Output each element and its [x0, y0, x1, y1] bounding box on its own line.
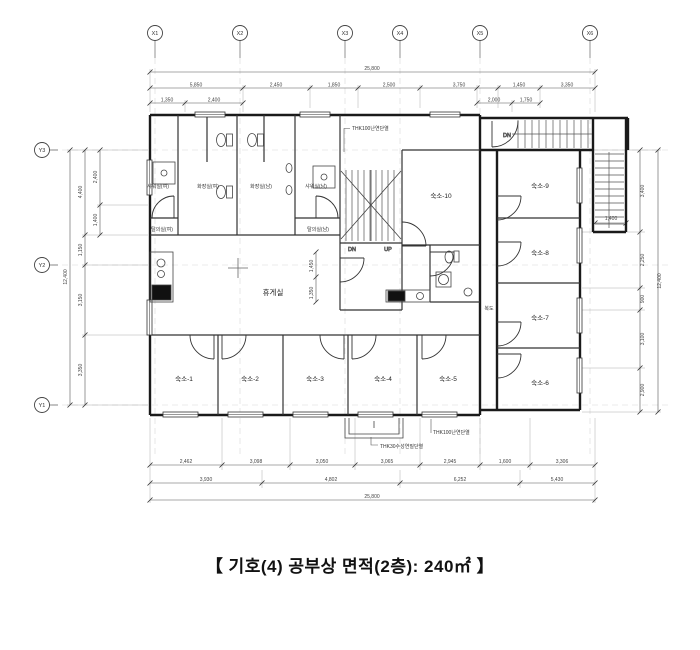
kitchen-sink — [157, 259, 165, 267]
grid-label-x1: X1 — [152, 31, 159, 37]
stair-up-label: UP — [384, 247, 392, 253]
room-label-suk7: 숙소-7 — [531, 314, 549, 322]
dim-text: 4,400 — [78, 186, 84, 199]
grid-label-x2: X2 — [237, 31, 244, 37]
dim-text: 3,150 — [78, 294, 84, 307]
washer-drum — [439, 275, 449, 285]
dim-text: 25,800 — [364, 494, 380, 500]
toilet-tank — [227, 134, 233, 146]
door-arc — [340, 258, 364, 282]
sink-icon — [464, 288, 472, 296]
dim-text: 3,100 — [640, 333, 646, 346]
dim-text: 5,430 — [551, 477, 564, 483]
kitchen-sink — [158, 271, 165, 278]
annotation-finish-bottom: THK30수성연질단열 — [380, 443, 424, 450]
room-label-shower-w: 샤워실(여) — [147, 183, 169, 190]
stair-treads-center — [346, 170, 394, 241]
dim-text: 1,600 — [499, 459, 512, 465]
canopy-outline — [345, 418, 403, 438]
toilet-tank — [454, 251, 459, 262]
urinal-icon — [286, 164, 292, 173]
shower-stall — [153, 162, 175, 184]
dim-text: 3,306 — [556, 459, 569, 465]
stair-cross — [341, 170, 401, 241]
dim-text: 3,065 — [381, 459, 394, 465]
dim-text: 2,462 — [180, 459, 193, 465]
toilet-icon — [217, 134, 226, 147]
dim-text: 2,500 — [383, 83, 396, 89]
dim-text: 900 — [640, 295, 646, 304]
annotation-insulation-bottom: THK100난연단열 — [433, 429, 470, 436]
door-arc — [316, 196, 338, 218]
toilet-icon — [445, 251, 453, 263]
door-arc — [402, 222, 426, 246]
door-arc — [497, 242, 521, 266]
annotation-insulation-top: THK100난연단열 — [352, 125, 389, 132]
toilet-tank — [258, 134, 264, 146]
grid-label-y1: Y1 — [39, 403, 46, 409]
room-label-suk5: 숙소-5 — [439, 375, 457, 383]
leader-lines — [344, 129, 431, 446]
dim-text: 6,252 — [454, 477, 467, 483]
shower-drain — [321, 174, 327, 180]
dim-text: 1,350 — [309, 287, 315, 300]
room-label-toilet-w: 화장실(여) — [197, 183, 219, 190]
grid-label-y3: Y3 — [39, 148, 46, 154]
grid-label-x6: X6 — [587, 31, 594, 37]
room-label-shower-m: 샤워실(남) — [305, 183, 327, 190]
room-label-suk8: 숙소-8 — [531, 249, 549, 257]
dim-text: 1,350 — [161, 98, 174, 104]
door-arc — [222, 335, 246, 359]
grid-label-x3: X3 — [342, 31, 349, 37]
dim-text: 1,400 — [93, 214, 99, 227]
dim-text: 1,150 — [78, 244, 84, 257]
floor-plan-svg: X1 X2 X3 X4 X5 X6 Y3 Y2 Y1 25,800 5,850 … — [0, 0, 700, 520]
kitchenette-sink — [417, 293, 424, 300]
kitchen-range — [152, 285, 171, 300]
dim-text: 2,000 — [488, 98, 501, 104]
room-label-corridor: 복도 — [484, 306, 494, 312]
room-label-suk2: 숙소-2 — [241, 375, 259, 383]
grid-label-x5: X5 — [477, 31, 484, 37]
dim-text: 2,945 — [444, 459, 457, 465]
dim-text: 4,802 — [325, 477, 338, 483]
kitchenette-range — [388, 291, 405, 301]
toilet-icon — [248, 134, 257, 147]
dim-text: 1,850 — [328, 83, 341, 89]
dim-text: 3,350 — [78, 364, 84, 377]
caption: 【 기호(4) 공부상 면적(2층): 240㎡ 】 — [0, 552, 700, 577]
fixtures — [150, 134, 472, 439]
door-arc — [320, 335, 344, 359]
dim-text: 3,930 — [200, 477, 213, 483]
room-label-dressing-w: 탈의실(여) — [151, 226, 173, 233]
dim-text: 12,400 — [63, 269, 69, 285]
shower-drain — [161, 170, 167, 176]
grid-label-y2: Y2 — [39, 263, 46, 269]
room-label-suk3: 숙소-3 — [306, 375, 324, 383]
room-label-dressing-m: 탈의실(남) — [307, 226, 329, 233]
room-label-suk1: 숙소-1 — [175, 375, 193, 383]
dim-text: 2,400 — [93, 171, 99, 184]
annotations: THK100난연단열 THK100난연단열 THK30수성연질단열 — [344, 125, 470, 450]
stair-dn-top-label: DN — [503, 133, 511, 139]
stair-treads-topright — [512, 120, 592, 148]
room-label-suk9: 숙소-9 — [531, 182, 549, 190]
door-arc — [422, 335, 446, 359]
grid-lines — [50, 41, 669, 459]
dim-text: 3,400 — [640, 185, 646, 198]
room-label-suk10: 숙소-10 — [430, 192, 452, 200]
door-arc — [497, 196, 521, 220]
dim-text: 3,050 — [316, 459, 329, 465]
dim-text: 2,250 — [640, 254, 646, 267]
dim-text: 25,800 — [364, 66, 380, 72]
room-label-toilet-m: 화장실(남) — [250, 183, 272, 190]
door-arc — [190, 335, 214, 359]
door-arc — [497, 322, 521, 346]
dim-text: 3,750 — [453, 83, 466, 89]
room-label-lounge: 휴게실 — [263, 287, 284, 297]
center-cross-mark — [228, 258, 248, 278]
toilet-tank — [227, 186, 233, 198]
drawing-sheet: X1 X2 X3 X4 X5 X6 Y3 Y2 Y1 25,800 5,850 … — [0, 0, 700, 650]
urinal-icon — [286, 186, 292, 195]
stair-dn-label: DN — [348, 247, 356, 253]
door-arc — [352, 335, 376, 359]
grid-label-x4: X4 — [397, 31, 404, 37]
dim-text: 1,450 — [513, 83, 526, 89]
dim-text: 2,450 — [270, 83, 283, 89]
windows — [147, 112, 582, 417]
dim-text: 1,450 — [309, 260, 315, 273]
dim-text: 2,400 — [208, 98, 221, 104]
dim-text: 12,400 — [657, 273, 663, 289]
dim-text: 2,900 — [640, 384, 646, 397]
dim-text: 5,850 — [190, 83, 203, 89]
dim-text: 3,350 — [561, 83, 574, 89]
door-arc — [497, 354, 521, 378]
room-label-suk4: 숙소-4 — [374, 375, 392, 383]
grid-bubble-stems — [50, 41, 591, 406]
dim-text: 1,750 — [520, 98, 533, 104]
room-label-suk6: 숙소-6 — [531, 379, 549, 387]
dim-text: 3,098 — [250, 459, 263, 465]
